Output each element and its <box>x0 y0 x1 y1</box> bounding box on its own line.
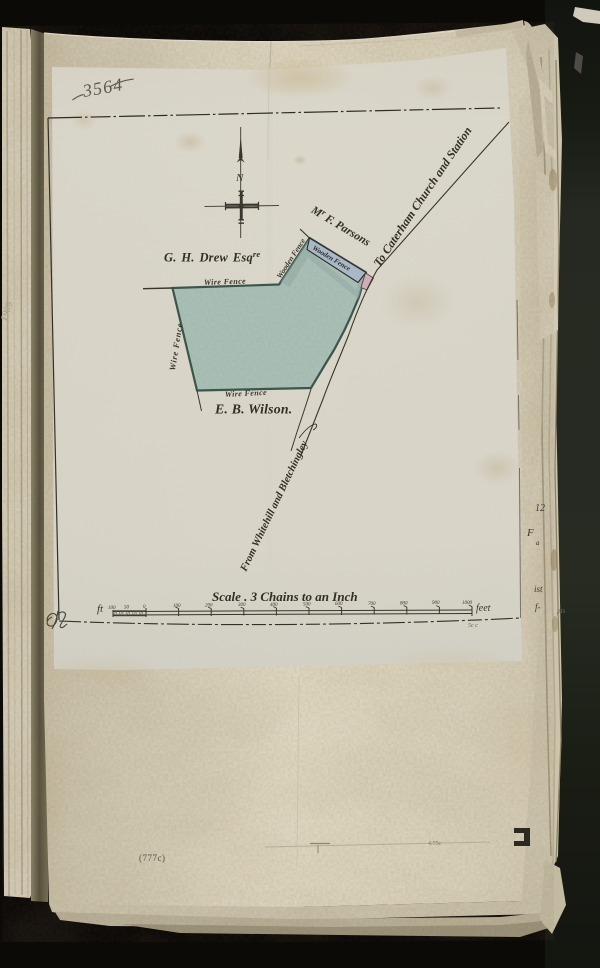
svg-text:1000: 1000 <box>462 601 473 606</box>
svg-text:600: 600 <box>335 602 343 607</box>
svg-text:a: a <box>536 539 540 547</box>
svg-text:ft: ft <box>97 603 104 615</box>
svg-text:N: N <box>235 172 244 184</box>
svg-text:f-: f- <box>535 602 541 612</box>
svg-text:50: 50 <box>124 606 130 611</box>
svg-text:500: 500 <box>303 603 311 608</box>
svg-text:100: 100 <box>108 606 116 611</box>
svg-text:F: F <box>526 527 534 539</box>
svg-text:200: 200 <box>205 604 213 609</box>
svg-text:(777c): (777c) <box>139 853 166 863</box>
svg-text:pts: pts <box>556 607 565 615</box>
svg-text:G. H. Drew Esqre: G. H. Drew Esqre <box>164 249 260 265</box>
svg-text:700: 700 <box>368 602 376 607</box>
svg-text:400: 400 <box>270 603 278 608</box>
svg-text:100: 100 <box>173 604 181 609</box>
svg-text:4.75c: 4.75c <box>428 841 442 847</box>
svg-text:Wire Fence: Wire Fence <box>204 277 246 287</box>
svg-text:feet: feet <box>476 603 491 614</box>
svg-text:E. B. Wilson.: E. B. Wilson. <box>214 402 292 417</box>
svg-text:12: 12 <box>535 503 545 514</box>
svg-text:5c c: 5c c <box>468 623 478 629</box>
svg-text:900: 900 <box>432 601 440 606</box>
svg-text:300: 300 <box>238 603 246 608</box>
svg-text:ist: ist <box>534 584 543 594</box>
svg-text:800: 800 <box>400 602 408 607</box>
